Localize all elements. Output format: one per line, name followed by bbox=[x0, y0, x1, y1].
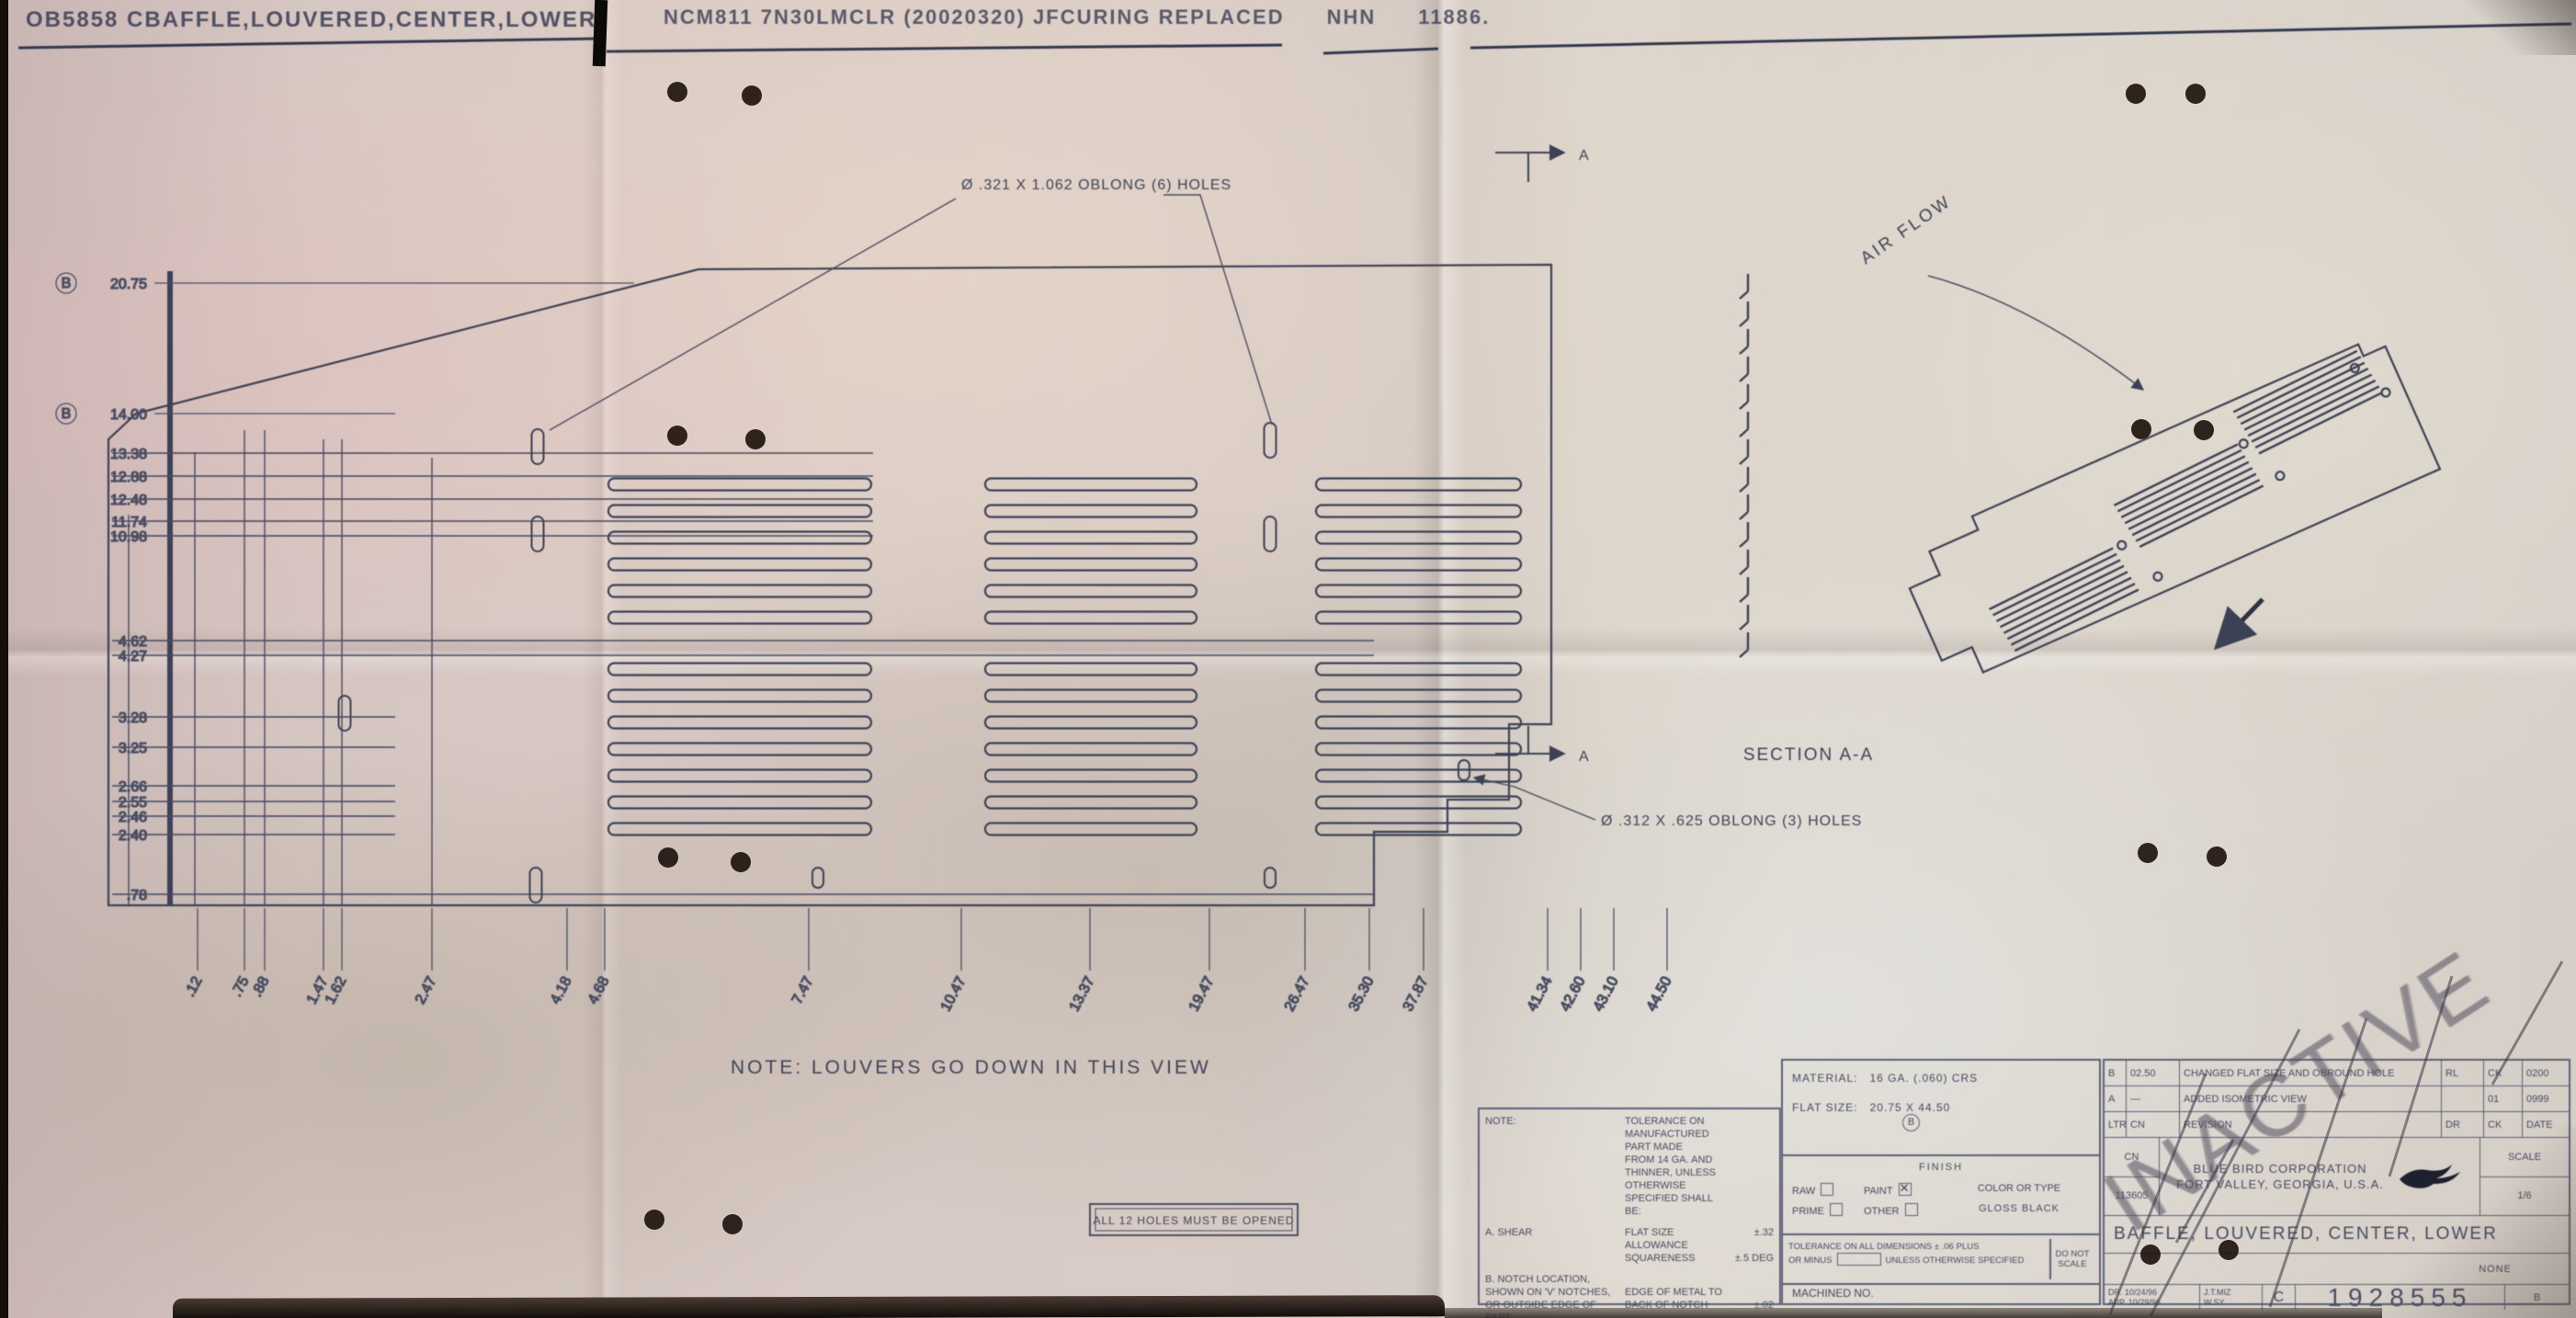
oblong-holes bbox=[339, 423, 1470, 903]
photographed-blueprint: OB5858 CBAFFLE,LOUVERED,CENTER,LOWER NCM… bbox=[0, 0, 2576, 1318]
louver-slot bbox=[1316, 717, 1521, 729]
louver-slot bbox=[985, 585, 1197, 597]
note-cell: SQUARENESS bbox=[1625, 1252, 1728, 1265]
note-cell: FROM 14 GA. AND THINNER, UNLESS bbox=[1625, 1153, 1728, 1179]
louver-slot bbox=[1316, 664, 1521, 676]
dimension-label: 7.47 bbox=[789, 974, 817, 1007]
note-cell: ±.5 DEG bbox=[1728, 1252, 1774, 1265]
dimension-label: 13.37 bbox=[1067, 974, 1098, 1014]
louver-slot bbox=[1316, 506, 1521, 517]
dimension-label: 35.30 bbox=[1346, 974, 1378, 1014]
iso-hole bbox=[2275, 471, 2286, 482]
stamped-box-note: ALL 12 HOLES MUST BE OPENED bbox=[1090, 1204, 1298, 1235]
louver-slot bbox=[608, 612, 871, 624]
photo-edge-bottom bbox=[173, 1295, 1445, 1318]
tolerance-entry-box bbox=[1837, 1253, 1881, 1266]
note-cell bbox=[1485, 1252, 1625, 1265]
oblong-hole-large bbox=[339, 696, 351, 731]
revision-cell: 0200 bbox=[2523, 1061, 2569, 1085]
section-stroke bbox=[1740, 291, 1748, 299]
louver-slot bbox=[608, 770, 871, 782]
machined-no-label: MACHINED NO. bbox=[1792, 1287, 1874, 1300]
louver-slot bbox=[985, 612, 1197, 624]
louver-slot bbox=[608, 717, 871, 729]
note-cell: SHOWN ON 'V' NOTCHES, bbox=[1485, 1286, 1625, 1299]
do-not-scale-cell: DO NOT SCALE bbox=[2049, 1239, 2094, 1279]
tolerance-line2: OR MINUS bbox=[1788, 1256, 1833, 1266]
louver-slot bbox=[608, 824, 871, 835]
corner-shadow-top-right bbox=[2466, 0, 2576, 55]
oblong-hole-large bbox=[1265, 517, 1277, 551]
note-cell bbox=[1728, 1179, 1774, 1218]
louver-slot bbox=[1316, 770, 1521, 782]
dimension-label: 12.88 bbox=[110, 470, 147, 485]
photo-edge-left bbox=[0, 0, 8, 1318]
material-finish-block: MATERIAL: 16 GA. (.060) CRS FLAT SIZE: 2… bbox=[1781, 1059, 2101, 1305]
section-stroke bbox=[1740, 429, 1748, 437]
note-row: OTHERWISE SPECIFIED SHALL BE: bbox=[1485, 1179, 1774, 1218]
dimension-label: 14.00 bbox=[110, 407, 147, 423]
note-cell: NOTE: bbox=[1485, 1115, 1625, 1153]
louver-slot bbox=[985, 479, 1197, 491]
dimension-label: 2.46 bbox=[119, 810, 147, 825]
revision-cell: 02.50 bbox=[2127, 1061, 2180, 1085]
section-stroke bbox=[1740, 567, 1748, 574]
iso-hole bbox=[2152, 571, 2163, 582]
section-stroke bbox=[1740, 319, 1748, 326]
note-row: NOTE:TOLERANCE ON MANUFACTURED PART MADE bbox=[1485, 1115, 1774, 1153]
dimension-label: 2.66 bbox=[119, 779, 147, 795]
louver-slot bbox=[1316, 824, 1521, 835]
section-stroke bbox=[1740, 484, 1748, 492]
oblong-hole-large bbox=[532, 429, 544, 464]
note-row: SHOWN ON 'V' NOTCHES,EDGE OF METAL TO bbox=[1485, 1286, 1774, 1299]
isometric-view: AIR FLOW bbox=[1857, 191, 2440, 686]
corner-shadow-bottom-right bbox=[2282, 1125, 2576, 1318]
louver-slot bbox=[985, 717, 1197, 729]
dimension-label: 37.87 bbox=[1401, 974, 1432, 1014]
flat-size-label: FLAT SIZE: bbox=[1792, 1101, 1858, 1114]
section-stroke bbox=[1740, 650, 1748, 657]
prime-checkbox[interactable] bbox=[1830, 1203, 1843, 1216]
section-stroke bbox=[1740, 540, 1748, 547]
note-cell: A. SHEAR bbox=[1485, 1226, 1625, 1252]
louver-slot bbox=[608, 506, 871, 517]
dimension-label: .78 bbox=[127, 888, 147, 903]
revision-cell: A bbox=[2105, 1086, 2127, 1111]
revision-cell: 01 bbox=[2484, 1086, 2523, 1111]
paint-checkbox[interactable] bbox=[1899, 1183, 1912, 1196]
louver-slot bbox=[608, 664, 871, 676]
machined-no-section: MACHINED NO. bbox=[1783, 1285, 2099, 1303]
louver-slot bbox=[608, 479, 871, 491]
oblong-hole-small bbox=[812, 868, 823, 888]
dimension-label: 26.47 bbox=[1282, 974, 1313, 1014]
section-stroke bbox=[1740, 512, 1748, 519]
tolerance-notes-block: NOTE:TOLERANCE ON MANUFACTURED PART MADE… bbox=[1478, 1108, 1781, 1305]
fold-tick-mark bbox=[593, 0, 608, 66]
material-section: MATERIAL: 16 GA. (.060) CRS FLAT SIZE: 2… bbox=[1783, 1061, 2099, 1156]
revision-cell: 0999 bbox=[2523, 1086, 2569, 1111]
note-cell bbox=[1625, 1273, 1728, 1286]
prime-label: PRIME bbox=[1792, 1206, 1824, 1217]
dimension-label: 4.18 bbox=[548, 974, 575, 1007]
note-row: B. NOTCH LOCATION, bbox=[1485, 1273, 1774, 1286]
dimension-label: 43.10 bbox=[1591, 974, 1622, 1014]
louver-slot bbox=[608, 797, 871, 809]
louver-slot bbox=[1316, 797, 1521, 809]
note-cell: TOLERANCE ON MANUFACTURED PART MADE bbox=[1625, 1115, 1728, 1153]
louver-slot bbox=[985, 824, 1197, 835]
stamped-box-text: ALL 12 HOLES MUST BE OPENED bbox=[1093, 1214, 1294, 1227]
hole-callouts: Ø .321 X 1.062 OBLONG (6) HOLES Ø .312 X… bbox=[550, 177, 1862, 829]
louver-slot bbox=[1316, 744, 1521, 756]
finish-section: FINISH RAW PAINT COLOR OR TYPE PRIME OTH… bbox=[1783, 1156, 2099, 1235]
dimension-label: 3.25 bbox=[119, 741, 147, 756]
section-markers: A A bbox=[1495, 148, 1589, 765]
dimension-label: 19.47 bbox=[1186, 974, 1218, 1014]
note-cell bbox=[1728, 1153, 1774, 1179]
louver-slot bbox=[985, 690, 1197, 702]
color-type-label: COLOR OR TYPE bbox=[1978, 1183, 2060, 1194]
louver-slot bbox=[608, 532, 871, 544]
air-flow-label: AIR FLOW bbox=[1857, 191, 1956, 268]
raw-checkbox[interactable] bbox=[1821, 1183, 1833, 1196]
section-stroke bbox=[1740, 347, 1748, 354]
revision-cell: LTR bbox=[2105, 1112, 2127, 1137]
revision-cell: CK bbox=[2484, 1061, 2523, 1085]
material-label: MATERIAL: bbox=[1792, 1072, 1857, 1085]
callout-top-text: Ø .321 X 1.062 OBLONG (6) HOLES bbox=[961, 177, 1231, 193]
approved-by: W.SY bbox=[2204, 1298, 2225, 1308]
color-type-value: GLOSS BLACK bbox=[1979, 1203, 2060, 1214]
note-cell bbox=[1728, 1115, 1774, 1153]
dimension-label: 4.68 bbox=[585, 974, 613, 1007]
section-stroke bbox=[1740, 622, 1748, 630]
dimension-label: .88 bbox=[249, 974, 272, 1000]
louver-slot bbox=[608, 744, 871, 756]
dimension-label: 2.40 bbox=[119, 828, 147, 844]
flat-size-value: 20.75 X 44.50 bbox=[1870, 1101, 1951, 1114]
oblong-hole-large bbox=[530, 868, 542, 903]
revision-cell: RL bbox=[2442, 1061, 2484, 1085]
note-cell bbox=[1728, 1286, 1774, 1299]
revision-cell bbox=[2442, 1086, 2484, 1111]
section-marker-bottom: A bbox=[1579, 749, 1589, 765]
tolerance-line3: UNLESS OTHERWISE SPECIFIED bbox=[1886, 1256, 2025, 1266]
other-label: OTHER bbox=[1864, 1206, 1900, 1217]
louver-slot bbox=[1316, 532, 1521, 544]
material-value: 16 GA. (.060) CRS bbox=[1869, 1072, 1978, 1085]
tolerance-line1: TOLERANCE ON ALL DIMENSIONS ± .06 PLUS bbox=[1788, 1242, 2049, 1253]
louver-slot bbox=[1316, 585, 1521, 597]
louver-slot bbox=[985, 506, 1197, 517]
dimension-label: 41.34 bbox=[1525, 974, 1556, 1014]
drawn-by: J.T.MIZ bbox=[2204, 1288, 2231, 1298]
other-checkbox[interactable] bbox=[1905, 1203, 1918, 1216]
dimension-label: .12 bbox=[182, 974, 205, 1000]
air-flow-leader bbox=[1928, 276, 2143, 390]
section-aa-profile bbox=[1740, 274, 1748, 657]
note-row: SQUARENESS±.5 DEG bbox=[1485, 1252, 1774, 1265]
louver-slot bbox=[1316, 479, 1521, 491]
dimension-label: 11.74 bbox=[111, 515, 147, 530]
note-cell: B. NOTCH LOCATION, bbox=[1485, 1273, 1625, 1286]
paint-label: PAINT bbox=[1864, 1186, 1893, 1197]
signature-dates: DR. 10/24/96 APP. 10/29/96 bbox=[2105, 1285, 2200, 1310]
dimension-label: .75 bbox=[229, 974, 252, 1000]
revision-cell: — bbox=[2127, 1086, 2180, 1111]
section-stroke bbox=[1740, 402, 1748, 409]
dimension-label: 44.50 bbox=[1644, 974, 1675, 1014]
note-row: FROM 14 GA. AND THINNER, UNLESS bbox=[1485, 1153, 1774, 1179]
note-cell: ±.32 bbox=[1728, 1226, 1774, 1252]
dimension-label: 13.38 bbox=[110, 447, 147, 462]
louver-slot bbox=[1316, 612, 1521, 624]
oblong-hole-small bbox=[1265, 868, 1276, 888]
note-cell: OTHERWISE SPECIFIED SHALL BE: bbox=[1625, 1179, 1728, 1218]
note-cell bbox=[1485, 1179, 1625, 1218]
tolerance-section: TOLERANCE ON ALL DIMENSIONS ± .06 PLUS O… bbox=[1783, 1235, 2099, 1285]
louver-slot bbox=[608, 690, 871, 702]
callout-bottom-text: Ø .312 X .625 OBLONG (3) HOLES bbox=[1601, 813, 1862, 829]
dimension-label: 2.55 bbox=[119, 795, 147, 811]
flow-direction-arrow bbox=[2217, 599, 2263, 647]
section-stroke bbox=[1740, 374, 1748, 381]
dimension-label: 4.62 bbox=[119, 634, 147, 650]
dimension-lines: 20.75B14.00B13.3812.8812.4811.7410.984.6… bbox=[56, 273, 1675, 1014]
finish-title: FINISH bbox=[1792, 1162, 2090, 1173]
iso-hole bbox=[2116, 540, 2128, 551]
louver-slot bbox=[608, 559, 871, 571]
note-cell bbox=[1728, 1273, 1774, 1286]
louver-slot bbox=[985, 770, 1197, 782]
dimension-label: 42.60 bbox=[1558, 974, 1589, 1014]
louver-slots bbox=[608, 479, 1521, 835]
flat-size-rev-mark: B bbox=[1902, 1114, 1920, 1131]
drawn-date: DR. 10/24/96 bbox=[2108, 1288, 2157, 1298]
louver-slot bbox=[985, 559, 1197, 571]
louver-slot bbox=[1316, 559, 1521, 571]
section-stroke bbox=[1740, 457, 1748, 464]
oblong-hole-large bbox=[1265, 423, 1277, 458]
signature-names: J.T.MIZ W.SY bbox=[2200, 1285, 2263, 1310]
raw-label: RAW bbox=[1792, 1186, 1815, 1197]
iso-hole bbox=[2238, 438, 2249, 449]
note-row: A. SHEARFLAT SIZE ALLOWANCE±.32 bbox=[1485, 1226, 1774, 1252]
louver-slot bbox=[985, 797, 1197, 809]
louver-slot bbox=[985, 664, 1197, 676]
iso-plate bbox=[1893, 335, 2440, 686]
section-label: SECTION A-A bbox=[1743, 745, 1874, 765]
dimension-label: 4.27 bbox=[119, 649, 147, 665]
section-marker-top: A bbox=[1579, 148, 1589, 164]
dimension-label: 20.75 bbox=[110, 277, 147, 292]
sheet-rule-lines bbox=[18, 24, 2571, 53]
dimension-label: 3.28 bbox=[119, 710, 147, 726]
revision-cell: B bbox=[2105, 1061, 2127, 1085]
louver-direction-note: NOTE: LOUVERS GO DOWN IN THIS VIEW bbox=[731, 1057, 1211, 1078]
rev-balloon-letter: B bbox=[62, 276, 72, 291]
rev-balloon-letter: B bbox=[62, 406, 72, 422]
louver-slot bbox=[608, 585, 871, 597]
dimension-label: 2.47 bbox=[413, 974, 440, 1007]
dimension-label: 10.47 bbox=[938, 974, 970, 1014]
louver-slot bbox=[1316, 690, 1521, 702]
iso-hole bbox=[2380, 387, 2391, 398]
dimension-label: 10.98 bbox=[110, 529, 147, 545]
photo-edge-bottom-right bbox=[1445, 1308, 2382, 1318]
note-cell: FLAT SIZE ALLOWANCE bbox=[1625, 1226, 1728, 1252]
dimension-label: 12.48 bbox=[110, 493, 147, 508]
note-cell bbox=[1485, 1153, 1625, 1179]
approved-date: APP. 10/29/96 bbox=[2108, 1298, 2161, 1308]
louver-slot bbox=[985, 532, 1197, 544]
note-cell: EDGE OF METAL TO bbox=[1625, 1286, 1728, 1299]
section-stroke bbox=[1740, 595, 1748, 602]
louver-slot bbox=[985, 744, 1197, 756]
